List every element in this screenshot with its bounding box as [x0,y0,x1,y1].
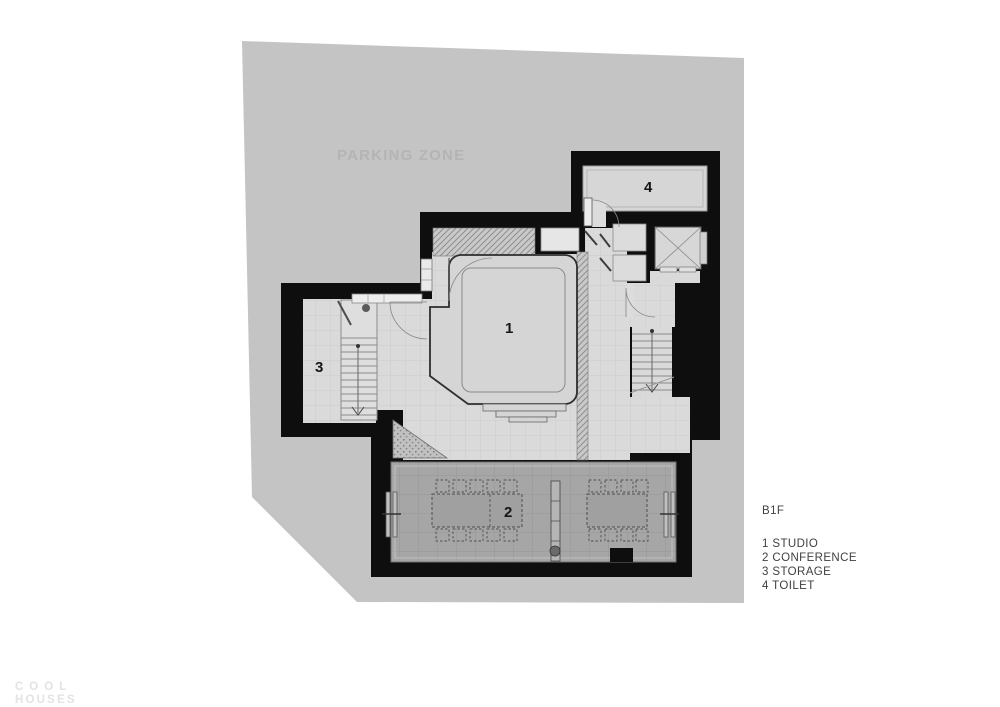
legend: B1F 1 STUDIO 2 CONFERENCE 3 STORAGE 4 TO… [762,505,857,592]
legend-item-studio: 1 STUDIO [762,538,818,550]
room-label-storage: 3 [315,359,323,376]
watermark-line1: COOL [15,681,72,693]
toilet-door-leaf [584,198,592,226]
legend-item-conference: 2 CONFERENCE [762,552,857,564]
elevator [655,227,707,272]
floor-plan-page: PARKING ZONE [0,0,1000,707]
entry-object [362,304,370,312]
floor-plan-drawing: PARKING ZONE [0,0,1000,707]
legend-item-storage: 3 STORAGE [762,566,831,578]
west-window [421,259,432,291]
room-label-toilet: 4 [644,179,653,196]
legend-item-toilet: 4 TOILET [762,580,815,592]
floor-title: B1F [762,505,784,517]
watermark-line2: HOUSES [15,694,77,706]
room-label-conference: 2 [504,504,512,521]
conference-room [382,462,679,562]
floor-object [550,546,560,556]
watermark-logo: COOL HOUSES [15,681,77,706]
parking-zone-label: PARKING ZONE [337,147,465,164]
room-label-studio: 1 [505,320,513,337]
